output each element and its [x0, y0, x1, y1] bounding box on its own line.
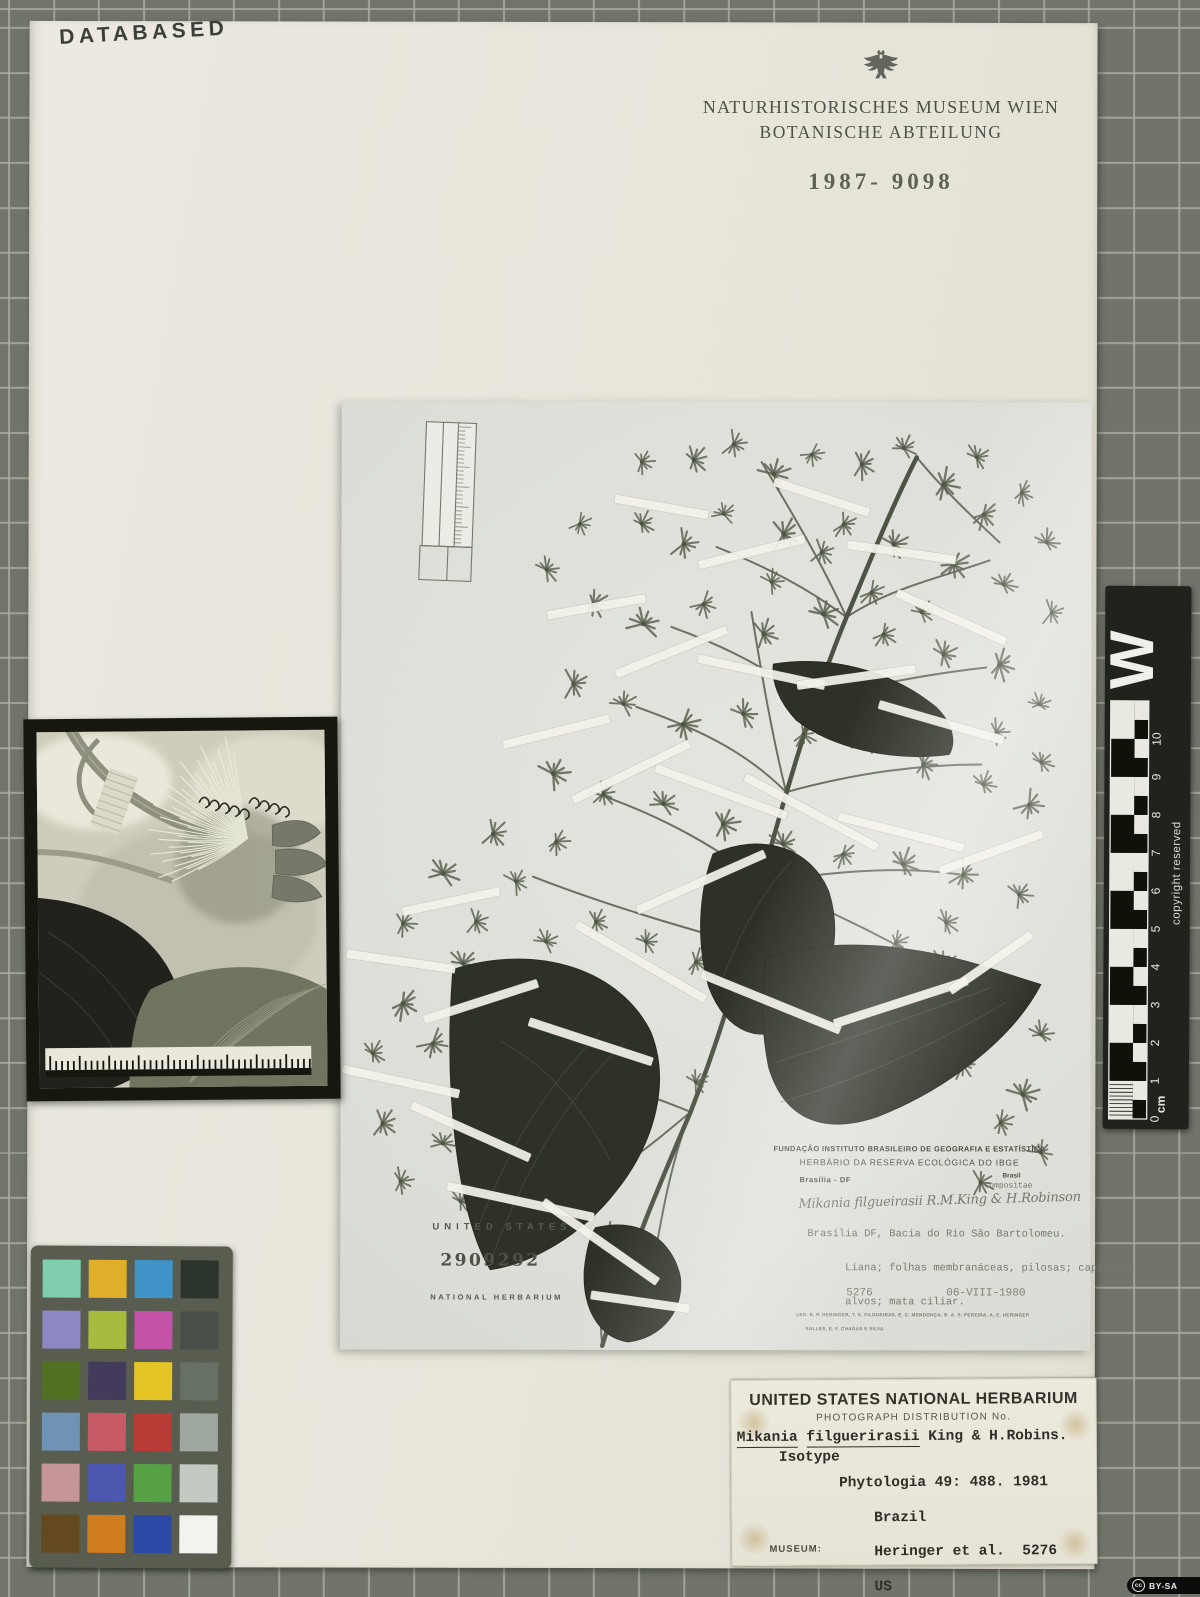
museum-department: BOTANISCHE ABTEILUNG — [681, 122, 1081, 143]
ibge-country: Brasil — [1002, 1173, 1020, 1180]
svg-text:8: 8 — [1149, 811, 1163, 818]
herbarium-code: US — [874, 1579, 892, 1595]
species-name-line: Mikania filguerirasii King & H.Robins. — [737, 1428, 1068, 1446]
authors: King & H.Robins. — [919, 1428, 1067, 1445]
svg-text:4: 4 — [1148, 963, 1162, 970]
color-patch — [134, 1464, 172, 1502]
color-patch — [88, 1413, 126, 1451]
svg-text:1: 1 — [1148, 1077, 1162, 1084]
color-patch — [89, 1260, 127, 1298]
accession-number-stamp: 1987- 9098 — [681, 169, 1081, 195]
label-title: UNITED STATES NATIONAL HERBARIUM — [731, 1390, 1097, 1410]
us-stamp-country: UNITED STATES — [432, 1222, 571, 1233]
svg-text:cm: cm — [1154, 1096, 1168, 1113]
color-patch — [133, 1515, 171, 1553]
collector-number: 5276 — [846, 1287, 872, 1299]
color-patch — [88, 1464, 126, 1502]
ibge-locality: Brasília - DF — [799, 1175, 851, 1184]
color-patch — [88, 1311, 126, 1349]
color-patch — [41, 1515, 79, 1553]
color-patch — [87, 1515, 125, 1553]
svg-text:6: 6 — [1149, 887, 1163, 894]
label-country: Brazil — [874, 1510, 926, 1526]
desc-line2: Liana; folhas membranáceas, pilosas; cap… — [845, 1262, 1135, 1275]
color-patch — [179, 1515, 217, 1553]
color-patch — [42, 1311, 80, 1349]
collection-date: 06-VIII-1980 — [946, 1287, 1025, 1299]
color-patch — [42, 1413, 80, 1451]
color-patch — [180, 1362, 218, 1400]
label-collectors: Heringer et al. 5276 — [874, 1543, 1057, 1560]
desc-line1: Brasília DF, Bacia do Rio São Bartolomeu… — [807, 1228, 1065, 1240]
citation-block: Phytologia 49: 488. 1981 Brazil Heringer… — [839, 1474, 1057, 1596]
collectors-line2: SALLES, E. F. CHAGAS E SILVA. — [806, 1326, 885, 1331]
color-patch — [42, 1464, 80, 1502]
us-specimen-number: 2909292 — [440, 1251, 540, 1271]
usnh-distribution-label: UNITED STATES NATIONAL HERBARIUM PHOTOGR… — [730, 1378, 1097, 1566]
adhesive-spot — [737, 1522, 771, 1556]
color-patch — [134, 1362, 172, 1400]
svg-text:copyright reserved: copyright reserved — [1171, 821, 1184, 925]
detail-photo-frame — [23, 717, 340, 1102]
color-patch — [135, 1260, 173, 1298]
scale-ruler-graphic: 012345678910Wcmcopyright reserved — [1103, 586, 1192, 1129]
digitized-herbarium-sheet-photo: { "stamps": { "databased": "DATABASED" }… — [0, 0, 1200, 1594]
svg-text:10: 10 — [1150, 732, 1164, 746]
us-stamp-institution: NATIONAL HERBARIUM — [430, 1293, 563, 1302]
svg-text:7: 7 — [1149, 849, 1163, 856]
color-patch — [180, 1464, 218, 1502]
austrian-eagle-icon — [862, 46, 900, 91]
color-calibration-chart — [29, 1245, 233, 1568]
svg-text:3: 3 — [1148, 1001, 1162, 1008]
type-status: Isotype — [779, 1449, 840, 1465]
color-patch — [134, 1413, 172, 1451]
citation: Phytologia 49: 488. 1981 — [839, 1474, 1048, 1491]
license-text: BY-SA — [1149, 1581, 1177, 1591]
svg-text:9: 9 — [1149, 773, 1163, 780]
color-patch — [180, 1413, 218, 1451]
collectors-line1: LEG. E. P. HERINGER, T. S. FILGUEIRAS, E… — [796, 1312, 1029, 1317]
color-patch — [88, 1362, 126, 1400]
ibge-org-line2: HERBÁRIO DA RESERVA ECOLÓGICA DO IBGE — [764, 1157, 1054, 1168]
ibge-org-line1: FUNDAÇÃO INSTITUTO BRASILEIRO DE GEOGRAF… — [765, 1144, 1055, 1154]
austrian-eagle-icon — [862, 46, 900, 86]
ibge-collection-label: FUNDAÇÃO INSTITUTO BRASILEIRO DE GEOGRAF… — [764, 1144, 1054, 1351]
genus: Mikania — [737, 1430, 798, 1448]
label-subtitle: PHOTOGRAPH DISTRIBUTION No. — [731, 1411, 1097, 1424]
museum-header: NATURHISTORISCHES MUSEUM WIEN BOTANISCHE… — [681, 46, 1081, 195]
collectors-list: LEG. E. P. HERINGER, T. S. FILGUEIRAS, E… — [796, 1311, 1029, 1332]
svg-text:2: 2 — [1148, 1039, 1162, 1046]
color-patch — [180, 1311, 218, 1349]
cc-icon: cc — [1132, 1579, 1145, 1592]
scale-ruler: 012345678910Wcmcopyright reserved — [1103, 586, 1192, 1129]
handwritten-species-name: Mikania filgueirasii R.M.King & H.Robins… — [798, 1190, 1081, 1212]
color-patch — [134, 1311, 172, 1349]
museum-field: MUSEUM: — [769, 1544, 821, 1555]
license-badge: cc BY-SA — [1127, 1577, 1200, 1594]
museum-name: NATURHISTORISCHES MUSEUM WIEN — [681, 97, 1081, 118]
svg-text:5: 5 — [1149, 925, 1163, 932]
epithet: filguerirasii — [806, 1429, 919, 1448]
color-patch — [181, 1260, 219, 1298]
color-patch — [43, 1260, 81, 1298]
specimen-photograph: UNITED STATES 2909292 NATIONAL HERBARIUM… — [340, 401, 1092, 1350]
detail-photo-image — [36, 730, 327, 1088]
adhesive-spot — [1057, 1526, 1091, 1560]
svg-text:W: W — [1103, 630, 1168, 689]
flower-closeup-artwork — [36, 730, 327, 1088]
svg-text:0: 0 — [1148, 1115, 1162, 1122]
ibge-family: Compositae — [984, 1181, 1032, 1190]
color-patch — [42, 1362, 80, 1400]
